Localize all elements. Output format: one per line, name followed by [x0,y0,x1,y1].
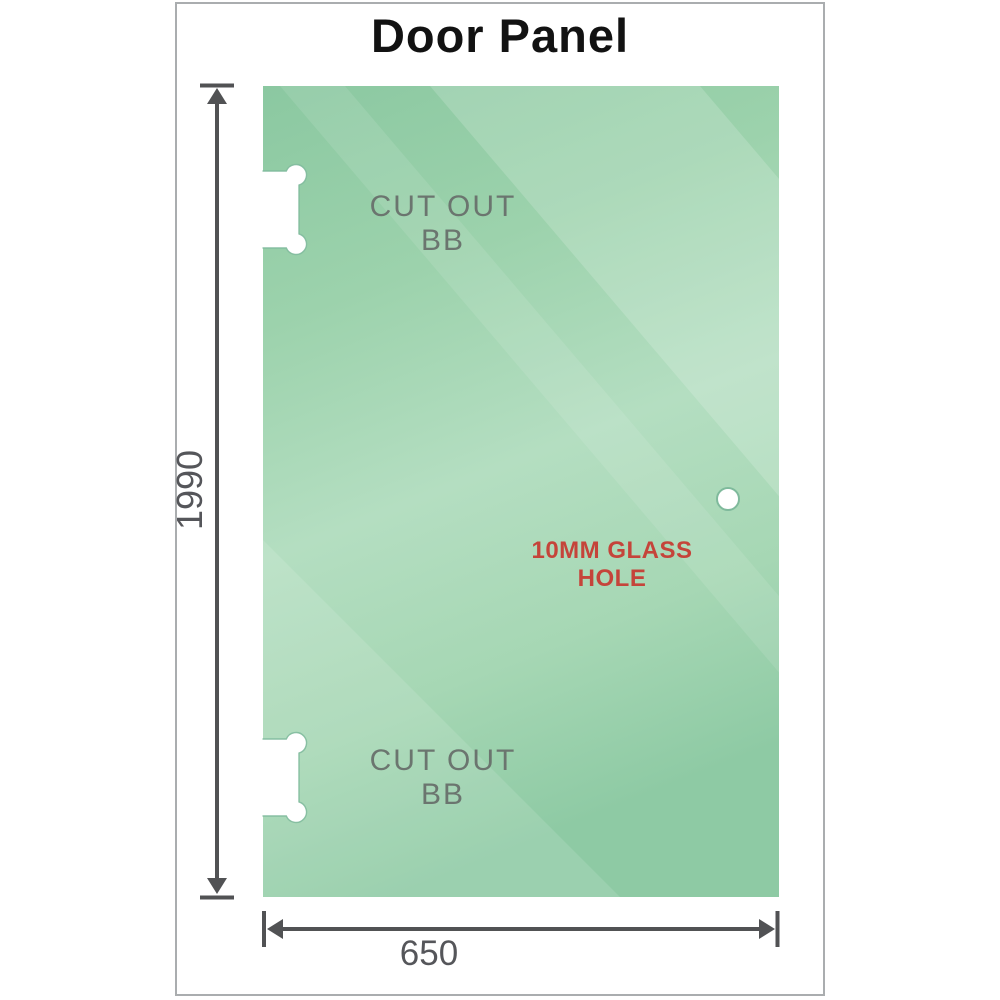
diagram-drawing [0,0,1000,1000]
arrow-down-icon [207,878,227,894]
arrow-right-icon [759,919,775,939]
cutout-bb-top-label: CUT OUT BB [343,190,543,258]
cutout-bb-bottom-label: CUT OUT BB [343,744,543,812]
dimension-tick-left [262,911,266,947]
dimension-cap-top [200,84,234,88]
dimension-cap-bottom [200,896,234,900]
width-dimension-value: 650 [369,934,489,974]
width-dimension [262,911,780,947]
width-dimension-line [281,927,760,931]
dimension-tick-right [776,911,780,947]
door-panel-diagram: Door Panel [0,0,1000,1000]
glass-hole-label: 10MM GLASS HOLE [506,537,718,593]
arrow-left-icon [267,919,283,939]
height-dimension-value: 1990 [155,430,225,550]
glass-hole [717,488,739,510]
